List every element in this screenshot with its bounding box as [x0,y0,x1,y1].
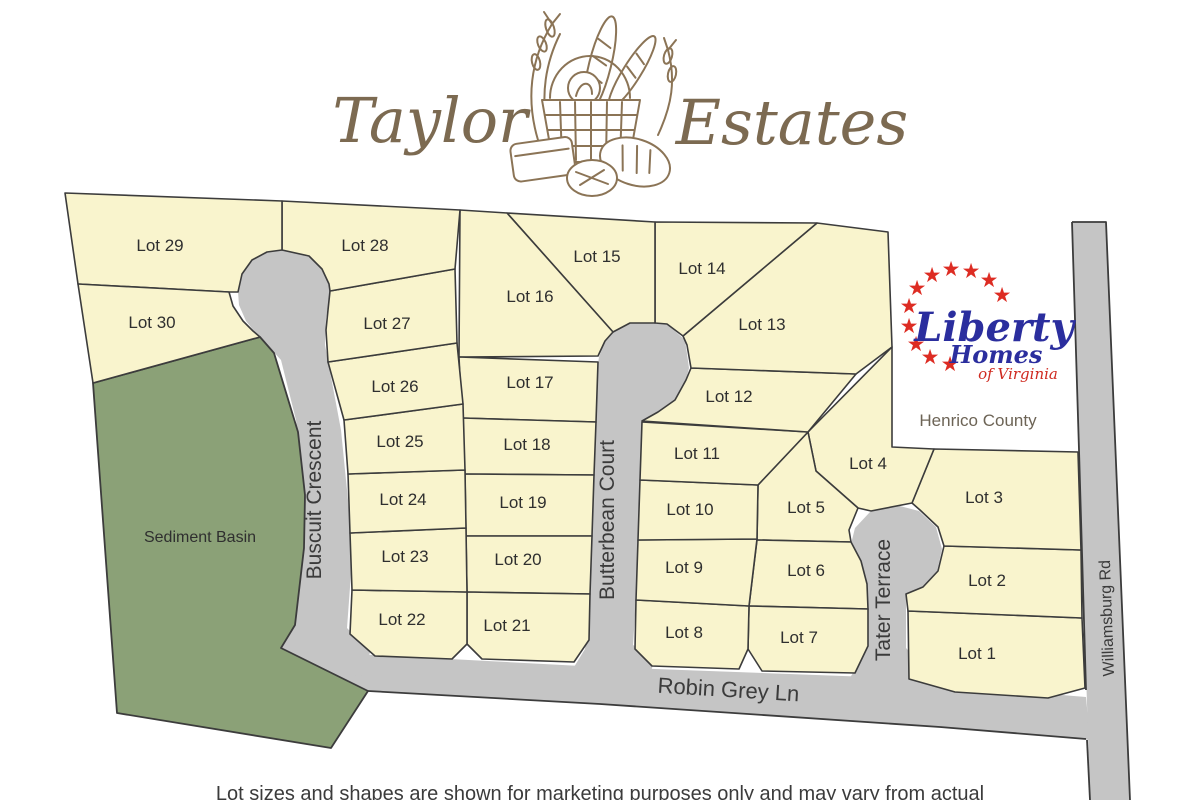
lot-label-13: Lot 13 [738,315,785,334]
lot-label-10: Lot 10 [666,500,713,519]
sediment-basin-label: Sediment Basin [144,529,256,546]
lot-label-28: Lot 28 [341,236,388,255]
liberty-homes-logo: ★ ★ ★ ★ ★ ★ ★ ★ ★ ★ ★ Liberty Homes of V… [900,257,1077,430]
disclaimer-text: Lot sizes and shapes are shown for marke… [0,783,1200,800]
lot-label-2: Lot 2 [968,571,1006,590]
plat-map-page: Lot 1 Lot 2 Lot 3 Lot 4 Lot 5 Lot 6 Lot … [0,0,1200,800]
lot-label-26: Lot 26 [371,377,418,396]
lot-label-12: Lot 12 [705,387,752,406]
lot-label-22: Lot 22 [378,610,425,629]
title-estates: Estates [675,86,908,159]
buscuit-crescent-label: Buscuit Crescent [303,420,326,579]
lot-polygon-1 [908,611,1085,698]
lot-label-7: Lot 7 [780,628,818,647]
lot-label-3: Lot 3 [965,488,1003,507]
bread-basket-illustration [510,12,678,196]
lot-label-15: Lot 15 [573,247,620,266]
lot-label-25: Lot 25 [376,432,423,451]
lot-label-24: Lot 24 [379,490,426,509]
lot-label-21: Lot 21 [483,616,530,635]
tater-terrace-label: Tater Terrace [872,539,895,661]
liberty-star-icon: ★ [942,257,961,281]
lot-label-27: Lot 27 [363,314,410,333]
lot-label-1: Lot 1 [958,644,996,663]
plat-map-svg: Lot 1 Lot 2 Lot 3 Lot 4 Lot 5 Lot 6 Lot … [0,0,1200,800]
lot-label-20: Lot 20 [494,550,541,569]
lot-label-17: Lot 17 [506,373,553,392]
lot-label-5: Lot 5 [787,498,825,517]
lot-label-18: Lot 18 [503,435,550,454]
lot-label-30: Lot 30 [128,313,175,332]
lot-label-14: Lot 14 [678,259,725,278]
butterbean-court-label: Butterbean Court [596,440,619,600]
lot-label-29: Lot 29 [136,236,183,255]
logo-of-virginia-text: of Virginia [978,365,1058,383]
lot-label-19: Lot 19 [499,493,546,512]
title-taylor: Taylor [332,84,531,157]
liberty-star-icon: ★ [962,259,981,283]
lot-label-6: Lot 6 [787,561,825,580]
liberty-star-icon: ★ [980,268,999,292]
lot-label-9: Lot 9 [665,558,703,577]
henrico-county-label: Henrico County [919,411,1037,430]
lot-label-16: Lot 16 [506,287,553,306]
lot-label-23: Lot 23 [381,547,428,566]
lot-label-11: Lot 11 [674,444,720,463]
lot-label-8: Lot 8 [665,623,703,642]
header: Taylor Estates [332,12,908,196]
lot-label-4: Lot 4 [849,454,887,473]
